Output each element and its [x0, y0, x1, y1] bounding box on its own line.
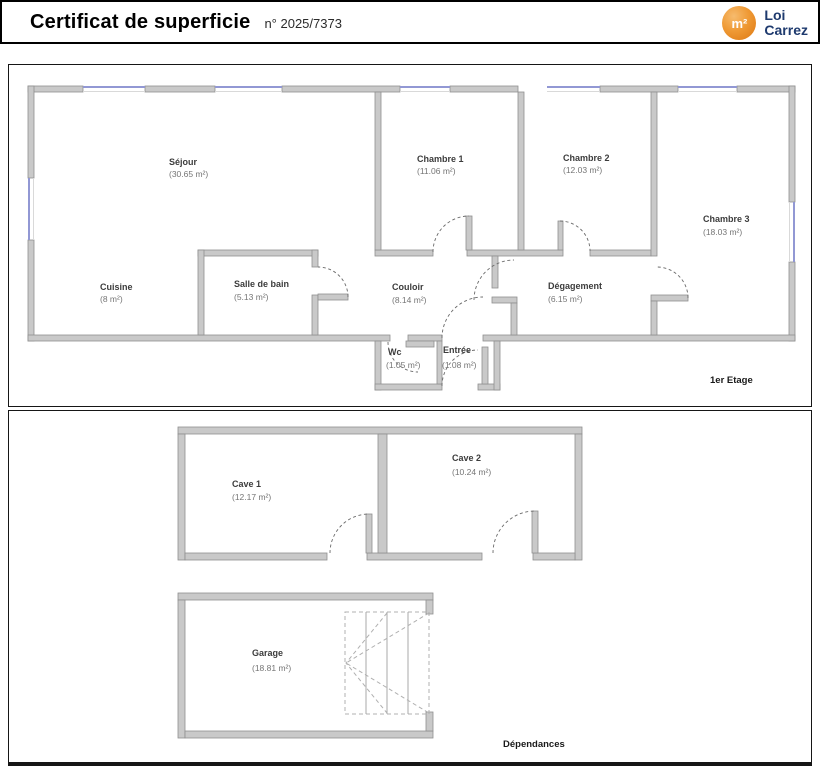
dependances-plan: Cave 1 (12.17 m²) Cave 2 (10.24 m²) Gara… [9, 411, 811, 762]
room-area-garage: (18.81 m²) [252, 663, 291, 673]
room-label-entree: Entrée [443, 345, 471, 355]
room-area-cave1: (12.17 m²) [232, 492, 271, 502]
room-label-cave2: Cave 2 [452, 453, 481, 463]
room-area-chambre3: (18.03 m²) [703, 227, 742, 237]
room-area-cave2: (10.24 m²) [452, 467, 491, 477]
garage-door-symbol [345, 612, 429, 714]
room-area-chambre2: (12.03 m²) [563, 165, 602, 175]
room-label-chambre3: Chambre 3 [703, 214, 750, 224]
room-label-cuisine: Cuisine [100, 282, 133, 292]
loi-carrez-line2: Carrez [764, 23, 808, 38]
room-label-wc: Wc [388, 347, 402, 357]
m2-badge-icon: m² [722, 6, 756, 40]
room-label-couloir: Couloir [392, 282, 424, 292]
room-label-degagement: Dégagement [548, 281, 602, 291]
room-area-sejour: (30.65 m²) [169, 169, 208, 179]
room-label-garage: Garage [252, 648, 283, 658]
page-title: Certificat de superficie [30, 11, 250, 34]
room-label-sejour: Séjour [169, 157, 198, 167]
room-area-degagement: (6.15 m²) [548, 294, 583, 304]
room-label-salle-de-bain: Salle de bain [234, 279, 289, 289]
room-label-chambre2: Chambre 2 [563, 153, 610, 163]
first-floor-sheet: Séjour (30.65 m²) Cuisine (8 m²) Salle d… [8, 64, 812, 407]
room-area-wc: (1.05 m²) [386, 360, 421, 370]
floor2-caption: Dépendances [503, 739, 565, 750]
room-area-cuisine: (8 m²) [100, 294, 123, 304]
room-label-chambre1: Chambre 1 [417, 154, 464, 164]
certificate-header: Certificat de superficie n° 2025/7373 m²… [0, 0, 820, 44]
garage-walls [178, 593, 433, 738]
room-area-couloir: (8.14 m²) [392, 295, 427, 305]
first-floor-plan: Séjour (30.65 m²) Cuisine (8 m²) Salle d… [9, 65, 811, 406]
first-floor-walls [28, 86, 795, 390]
dependances-room-labels: Cave 1 (12.17 m²) Cave 2 (10.24 m²) Gara… [232, 453, 565, 750]
floor1-caption: 1er Etage [710, 375, 753, 386]
loi-carrez-line1: Loi [764, 8, 808, 23]
dependances-sheet: Cave 1 (12.17 m²) Cave 2 (10.24 m²) Gara… [8, 410, 812, 766]
first-floor-windows [28, 86, 795, 262]
room-area-chambre1: (11.06 m²) [417, 166, 456, 176]
caves-door-arcs [330, 511, 535, 553]
room-area-entree: (1.08 m²) [442, 360, 477, 370]
document-number: n° 2025/7373 [264, 16, 342, 31]
loi-carrez-logo: m² Loi Carrez [722, 6, 808, 40]
loi-carrez-label: Loi Carrez [764, 8, 808, 38]
room-label-cave1: Cave 1 [232, 479, 261, 489]
room-area-salle-de-bain: (5.13 m²) [234, 292, 269, 302]
